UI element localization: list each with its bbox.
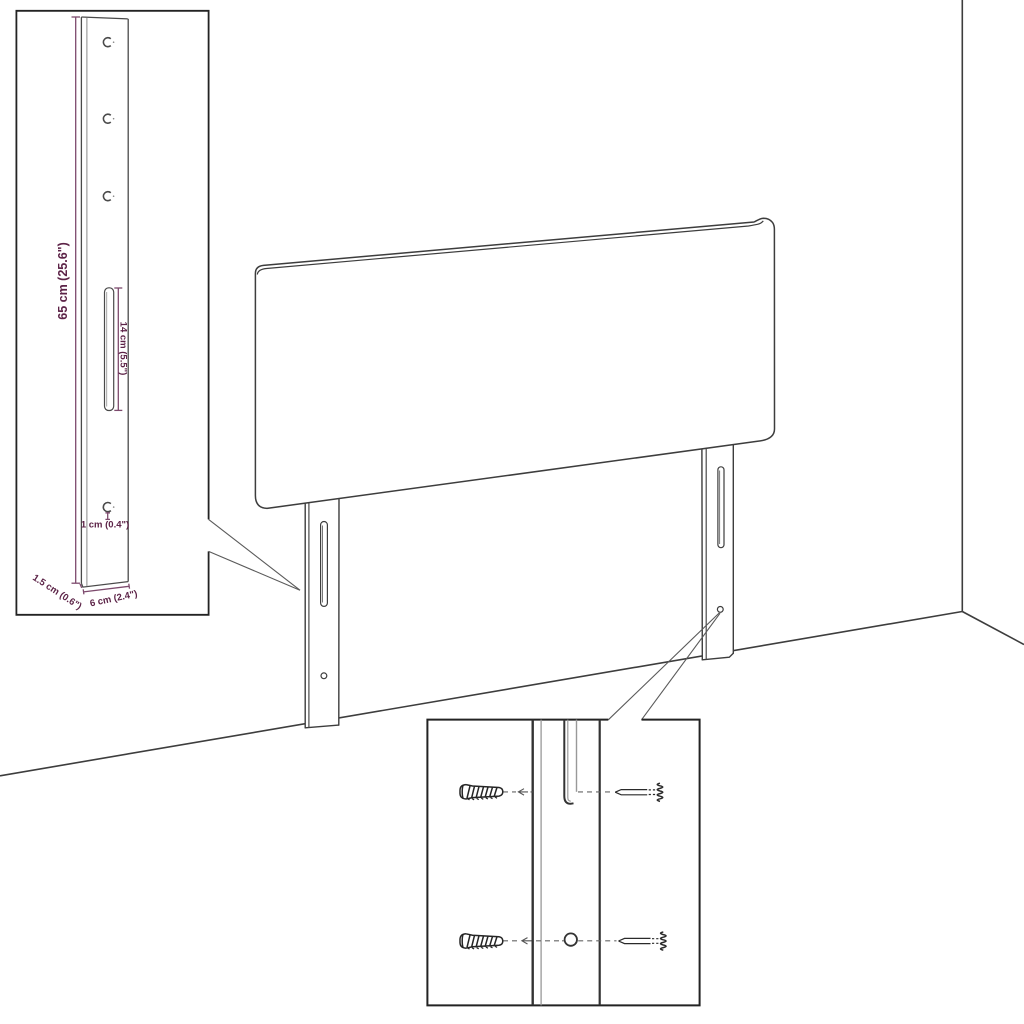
svg-text:1 cm (0.4"): 1 cm (0.4") — [81, 520, 129, 531]
svg-text:14 cm (5.5"): 14 cm (5.5") — [117, 322, 128, 376]
svg-text:65 cm (25.6"): 65 cm (25.6") — [56, 242, 70, 320]
